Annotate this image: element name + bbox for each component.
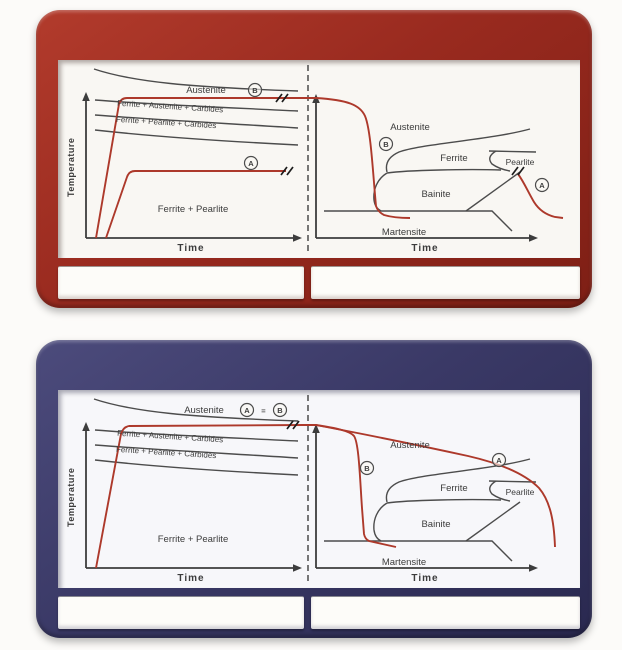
caption-box-right[interactable] <box>311 596 580 629</box>
panel-top-footer <box>58 266 580 299</box>
annealing-diagram-top: B A B A Temperature Time Time Austenite … <box>58 60 580 258</box>
marker-b-label-right: B <box>383 140 389 149</box>
marker-a-label: A <box>244 406 250 415</box>
equals-sign: = <box>261 407 266 416</box>
panel-top: B A B A Temperature Time Time Austenite … <box>36 10 592 308</box>
path-b-cooling <box>304 98 410 218</box>
region-bainite: Bainite <box>421 189 450 200</box>
heating-cooling-paths-red <box>96 425 555 568</box>
x-axis-label-right: Time <box>411 573 438 584</box>
curve-markers: B A B A <box>245 84 549 192</box>
region-ferrite: Ferrite <box>440 483 467 494</box>
region-pearlite: Pearlite <box>506 157 535 167</box>
region-ferrite-pearlite: Ferrite + Pearlite <box>158 534 229 545</box>
caption-box-left[interactable] <box>58 596 304 629</box>
axes <box>82 422 538 572</box>
region-pearlite: Pearlite <box>506 487 535 497</box>
panel-bottom-footer <box>58 596 580 629</box>
caption-box-left[interactable] <box>58 266 304 299</box>
curve-label-ferrite-austenite-carbides: Ferrite + Austenite + Carbides <box>117 99 224 115</box>
x-axis-label-left: Time <box>177 573 204 584</box>
y-axis-label: Temperature <box>66 468 76 527</box>
marker-b-label-right: B <box>364 464 370 473</box>
region-austenite-left: Austenite <box>186 85 226 96</box>
region-ferrite-pearlite: Ferrite + Pearlite <box>158 204 229 215</box>
marker-b-label: B <box>252 86 258 95</box>
marker-a-label-right: A <box>539 181 545 190</box>
region-austenite-right: Austenite <box>390 440 430 451</box>
axes <box>82 92 538 242</box>
ttt-curves <box>324 129 536 231</box>
region-austenite-right: Austenite <box>390 122 430 133</box>
panel-bottom: A = B B A Temperature Time Time Austenit… <box>36 340 592 638</box>
marker-b-label: B <box>277 406 283 415</box>
marker-a-label-right: A <box>496 456 502 465</box>
region-austenite-left: Austenite <box>184 405 224 416</box>
curve-label-ferrite-austenite-carbides: Ferrite + Austenite + Carbides <box>117 429 224 445</box>
x-axis-label-left: Time <box>177 243 204 254</box>
x-axis-label-right: Time <box>411 243 438 254</box>
curve-label-ferrite-pearlite-carbides: Ferrite + Pearlite + Carbides <box>116 115 217 130</box>
marker-a-label: A <box>248 159 254 168</box>
region-martensite: Martensite <box>382 557 426 568</box>
caption-box-right[interactable] <box>311 266 580 299</box>
region-martensite: Martensite <box>382 227 426 238</box>
path-b-cooling <box>316 425 396 547</box>
region-bainite: Bainite <box>421 519 450 530</box>
y-axis-label: Temperature <box>66 138 76 197</box>
panel-top-diagram-screen: B A B A Temperature Time Time Austenite … <box>58 60 580 258</box>
curve-markers: A = B B A <box>241 404 506 475</box>
curve-label-ferrite-pearlite-carbides: Ferrite + Pearlite + Carbides <box>116 445 217 460</box>
ttt-curves <box>324 459 536 561</box>
axis-break-marks <box>276 94 524 175</box>
region-ferrite: Ferrite <box>440 153 467 164</box>
annealing-diagram-bottom: A = B B A Temperature Time Time Austenit… <box>58 390 580 588</box>
panel-bottom-diagram-screen: A = B B A Temperature Time Time Austenit… <box>58 390 580 588</box>
